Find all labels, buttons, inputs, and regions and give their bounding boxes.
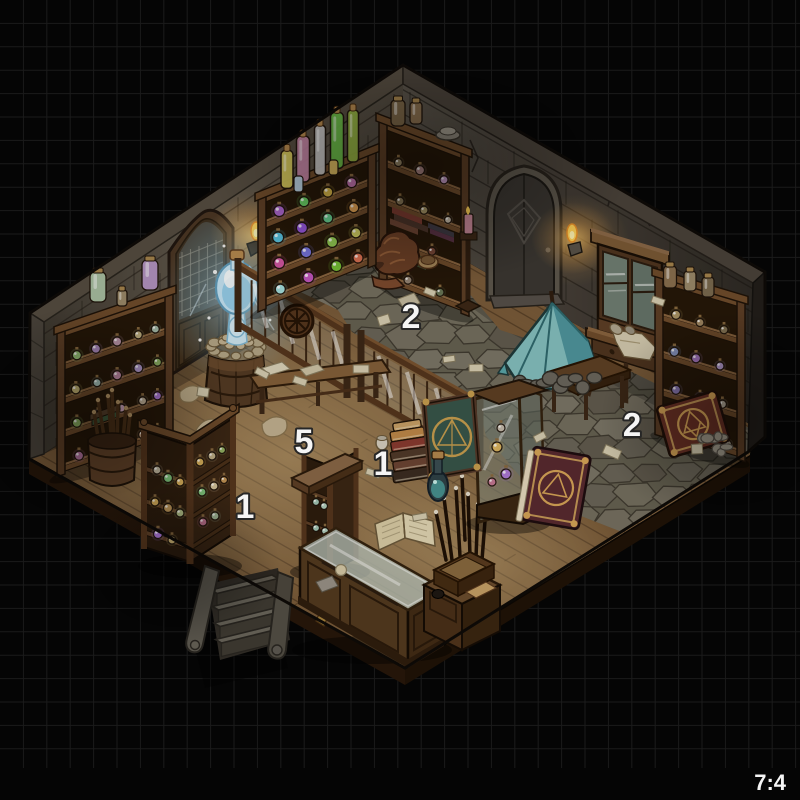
svg-text:7:4: 7:4 [754,770,787,795]
svg-text:1: 1 [236,488,255,526]
svg-text:1: 1 [374,445,393,483]
svg-text:2: 2 [623,406,641,443]
svg-text:5: 5 [295,423,314,461]
svg-text:2: 2 [402,298,421,336]
